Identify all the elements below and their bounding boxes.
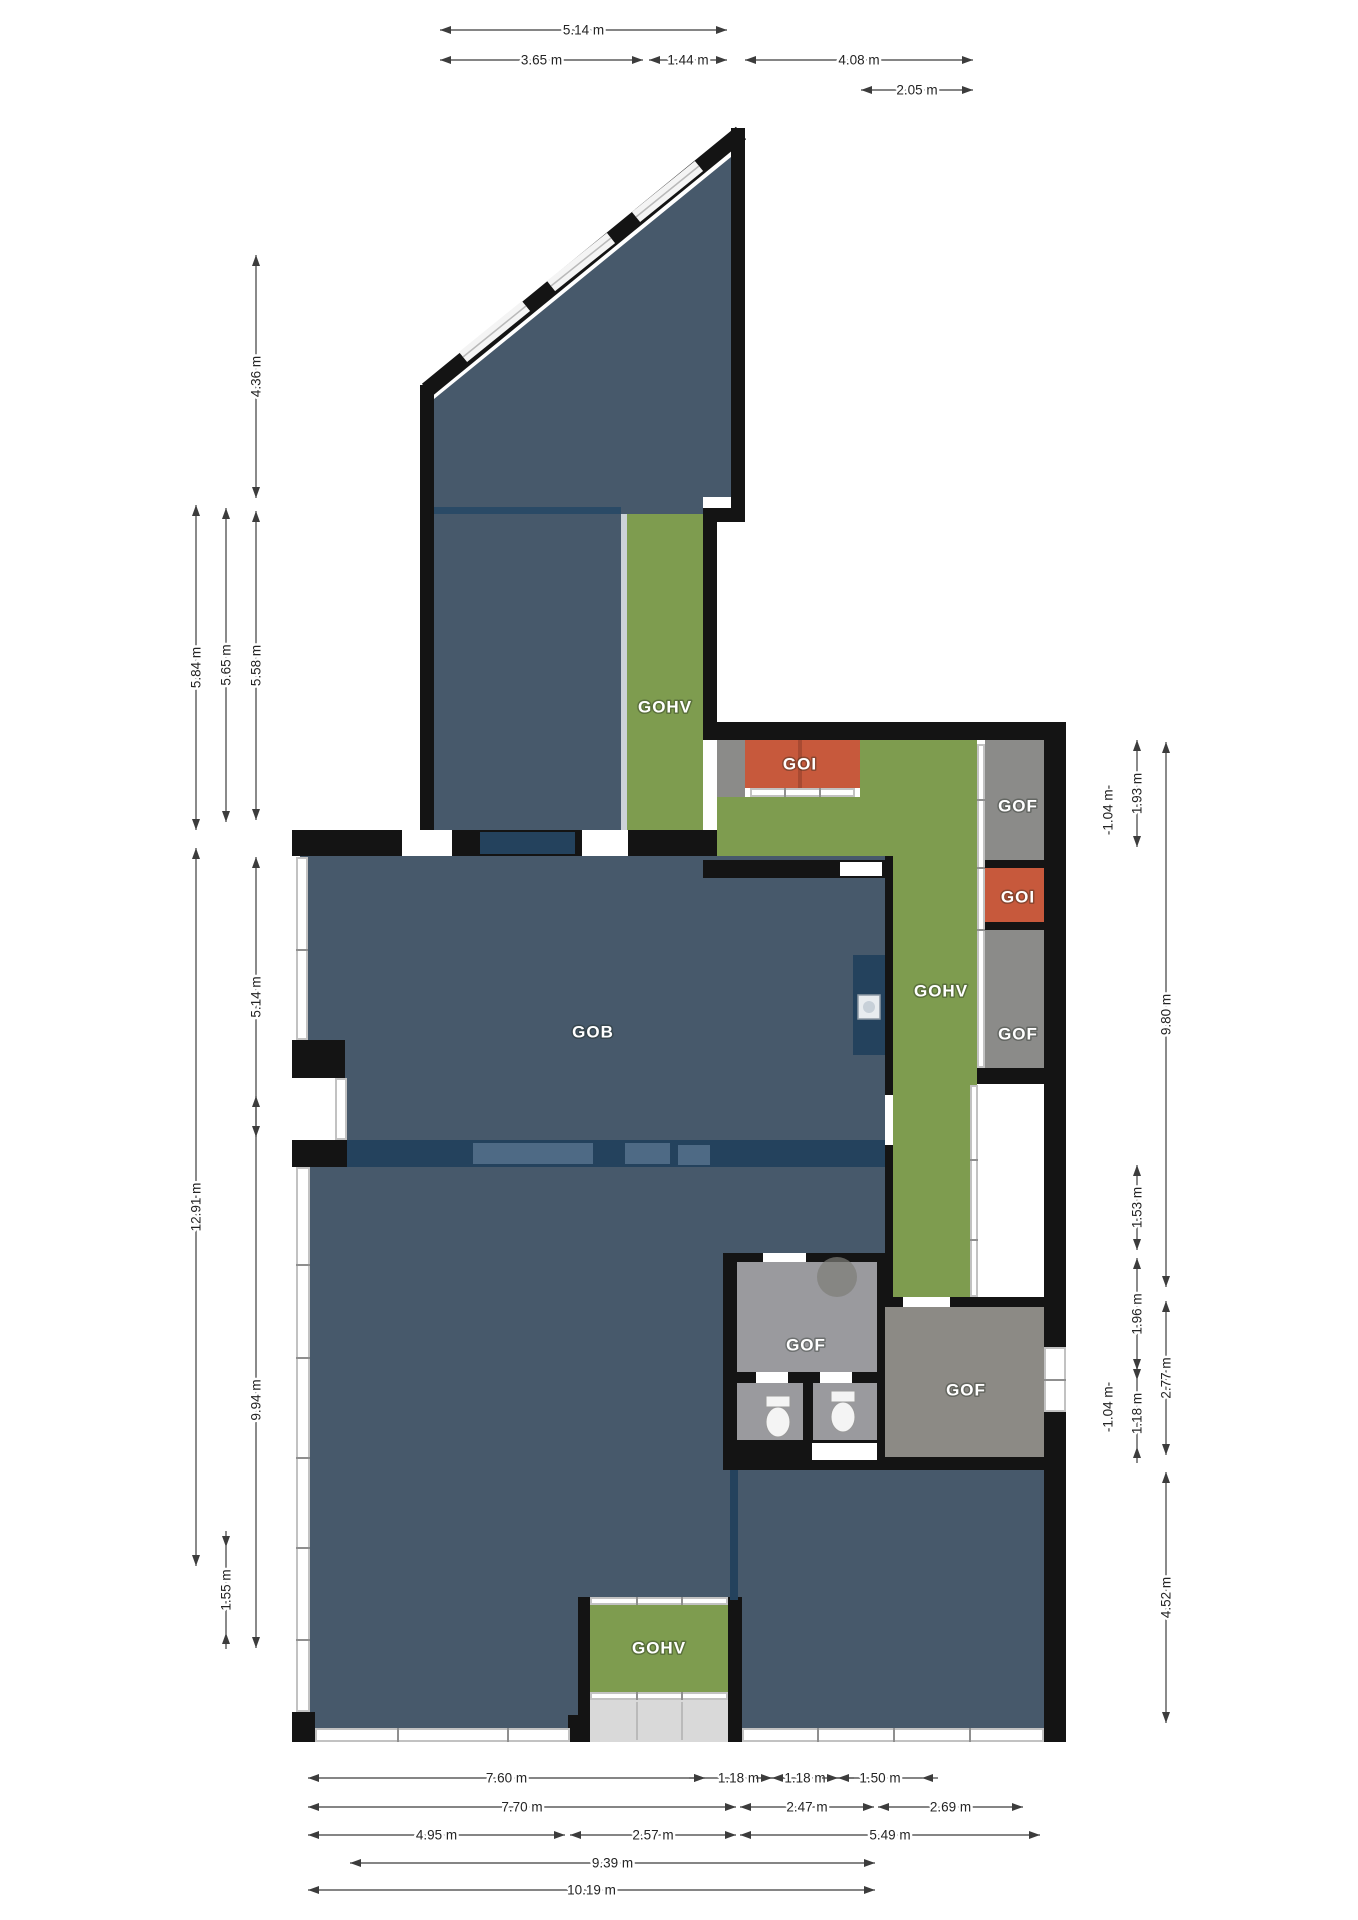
dim-left-9.94-a1 bbox=[252, 1096, 260, 1107]
dim-right-1.53-a2 bbox=[1133, 1239, 1141, 1250]
dim-bot-1.50-a1 bbox=[827, 1774, 838, 1782]
window-goi-1-sill-glass bbox=[752, 790, 853, 795]
dim-bot-10.19-a1 bbox=[308, 1886, 319, 1894]
dim-top-5.14-label: 5.14 m bbox=[563, 23, 604, 38]
gob-band bbox=[300, 1140, 893, 1167]
dim-bot-4.95-label: 4.95 m bbox=[416, 1828, 457, 1843]
bottom-corner-right bbox=[1044, 1712, 1066, 1742]
dim-right-1.93-a1 bbox=[1133, 740, 1141, 751]
dim-top-3.65-label: 3.65 m bbox=[521, 53, 562, 68]
gof-4-bottom-wall bbox=[723, 1457, 1066, 1470]
dim-top-3.65-a2 bbox=[632, 56, 643, 64]
dim-bot-2.57-a1 bbox=[570, 1831, 581, 1839]
dim-right-1.96-a1 bbox=[1133, 1258, 1141, 1269]
dim-bot-2.47-a2 bbox=[863, 1803, 874, 1811]
window-gohv-b-bottom-glass bbox=[592, 1694, 726, 1698]
window-corridor-right-glass bbox=[979, 746, 983, 1066]
dim-top-1.44-a1 bbox=[649, 56, 660, 64]
door-toilet-top bbox=[763, 1253, 806, 1262]
alcove-notch bbox=[292, 1078, 335, 1140]
toilet-left-wall bbox=[723, 1253, 737, 1470]
dim-bot-9.39-a1 bbox=[350, 1859, 361, 1867]
label-goi-2: GOI bbox=[1001, 888, 1035, 907]
gob-band-furniture-3 bbox=[678, 1145, 710, 1165]
dim-bot-2.69-label: 2.69 m bbox=[930, 1800, 971, 1815]
dim-bot-2.57-a2 bbox=[725, 1831, 736, 1839]
floor-plan-canvas: GOHVGOIGOFGOIGOHVGOFGOBGOFGOFGOHV5.14 m3… bbox=[0, 0, 1358, 1920]
room-gob bbox=[300, 856, 893, 1140]
dim-bot-7.60-label: 7.60 m bbox=[486, 1771, 527, 1786]
dim-right-1.18-a1 bbox=[1133, 1369, 1141, 1380]
dim-bot-10.19-label: 10.19 m bbox=[567, 1883, 616, 1898]
label-gohv-wing: GOHV bbox=[638, 698, 692, 717]
navy-partition bbox=[730, 1470, 738, 1600]
dim-bot-4.95-a1 bbox=[308, 1831, 319, 1839]
toilet-1-bowl bbox=[766, 1407, 790, 1437]
dim-top-4.08-a2 bbox=[962, 56, 973, 64]
dim-left-1.55-a2 bbox=[222, 1633, 230, 1644]
dim-bot-4.95-a2 bbox=[554, 1831, 565, 1839]
dim-right-2.77-label: 2.77 m bbox=[1159, 1357, 1174, 1398]
window-void-strip-glass bbox=[972, 1087, 976, 1295]
dim-left-5.65-a1 bbox=[222, 508, 230, 519]
gof-1-bottom-wall bbox=[977, 860, 1044, 868]
dim-bot-9.39-a2 bbox=[864, 1859, 875, 1867]
dim-right-2.77-a1 bbox=[1162, 1301, 1170, 1312]
gof-2-bottom-wall bbox=[977, 1068, 1066, 1084]
dim-bot-7.60-a1 bbox=[308, 1774, 319, 1782]
dim-left-4.36-a1 bbox=[252, 255, 260, 266]
window-gohv-b-top-glass bbox=[592, 1599, 726, 1603]
dim-bot-7.70-label: 7.70 m bbox=[501, 1800, 542, 1815]
door-gap-wing-2 bbox=[582, 830, 628, 856]
door-gap-wing-1 bbox=[402, 830, 452, 856]
label-goi-1: GOI bbox=[783, 755, 817, 774]
door-corridor-gof4 bbox=[903, 1297, 950, 1307]
right-section-top-wall bbox=[703, 722, 1066, 740]
toilet-right-wall bbox=[877, 1253, 885, 1470]
dim-right-2.77-a2 bbox=[1162, 1444, 1170, 1455]
dim-top-3.65-a1 bbox=[440, 56, 451, 64]
dim-right-1.93-label: 1.93 m bbox=[1130, 773, 1145, 814]
window-gob-left-glass bbox=[298, 859, 306, 1038]
dim-left-9.94-a2 bbox=[252, 1637, 260, 1648]
dim-left-5.65-label: 5.65 m bbox=[219, 644, 234, 685]
gob-top-wall-navy bbox=[480, 832, 575, 854]
wing-right-wall-up bbox=[731, 128, 745, 517]
dim-bot-5.49-a2 bbox=[1029, 1831, 1040, 1839]
dim-left-5.58-a1 bbox=[252, 511, 260, 522]
dim-top-1.44-a2 bbox=[716, 56, 727, 64]
door-toilet-stall-1 bbox=[756, 1372, 788, 1383]
dim-left-5.84-label: 5.84 m bbox=[189, 647, 204, 688]
dim-bot-1.18b-a1 bbox=[761, 1774, 772, 1782]
dim-right-1.53-label: 1.53 m bbox=[1130, 1187, 1145, 1228]
dim-bot-2.57-label: 2.57 m bbox=[632, 1828, 673, 1843]
dim-right-1.96-label: 1.96 m bbox=[1130, 1293, 1145, 1334]
entrance-porch bbox=[590, 1700, 728, 1742]
dim-right-1.04a: -1.04 m- bbox=[1101, 785, 1116, 835]
door-toilet-hall bbox=[812, 1443, 877, 1460]
dim-right-1.93-a2 bbox=[1133, 836, 1141, 847]
room-gof-2 bbox=[985, 930, 1044, 1068]
dim-right-4.52-a1 bbox=[1162, 1472, 1170, 1483]
toilet-2-bowl bbox=[831, 1402, 855, 1432]
dim-bot-1.50-a2 bbox=[922, 1774, 933, 1782]
dim-right-9.80-a2 bbox=[1162, 1276, 1170, 1287]
wing-left-wall bbox=[420, 385, 434, 856]
dim-top-4.08-label: 4.08 m bbox=[838, 53, 879, 68]
dim-right-1.04b: -1.04 m- bbox=[1101, 1382, 1116, 1432]
dim-left-5.58-a2 bbox=[252, 809, 260, 820]
gob-band-furniture-2 bbox=[625, 1143, 670, 1164]
dim-left-12.91-a1 bbox=[192, 848, 200, 859]
label-gof-4: GOF bbox=[946, 1381, 986, 1400]
dim-bot-1.18a-a1 bbox=[694, 1774, 705, 1782]
dim-bot-1.18a-label: 1.18 m bbox=[718, 1771, 759, 1786]
door-toilet-stall-2 bbox=[820, 1372, 852, 1383]
dim-top-2.05-a1 bbox=[861, 86, 872, 94]
dim-left-9.94-label: 9.94 m bbox=[249, 1379, 264, 1420]
toilet-divider-v bbox=[803, 1383, 813, 1440]
dim-left-12.91-label: 12.91 m bbox=[189, 1183, 204, 1232]
dim-bot-2.47-a1 bbox=[740, 1803, 751, 1811]
dim-bot-5.49-a1 bbox=[740, 1831, 751, 1839]
label-gohv-bottom: GOHV bbox=[632, 1639, 686, 1658]
label-gof-3: GOF bbox=[786, 1336, 826, 1355]
dim-left-4.36-a2 bbox=[252, 487, 260, 498]
dim-bot-1.50-label: 1.50 m bbox=[859, 1771, 900, 1786]
dim-right-4.52-a2 bbox=[1162, 1712, 1170, 1723]
toilet-2-tank bbox=[831, 1391, 855, 1402]
dim-left-12.91-a2 bbox=[192, 1555, 200, 1566]
kitchen-knob bbox=[863, 1001, 875, 1013]
dim-left-1.55-a1 bbox=[222, 1536, 230, 1547]
dim-bot-9.39-label: 9.39 m bbox=[592, 1856, 633, 1871]
gohv-b-right-wall bbox=[728, 1597, 742, 1742]
gob-band-furniture-1 bbox=[473, 1143, 593, 1164]
dim-left-5.84-a2 bbox=[192, 819, 200, 830]
door-green-strip bbox=[840, 862, 882, 876]
dim-left-5.14-label: 5.14 m bbox=[249, 976, 264, 1017]
label-gohv-mid: GOHV bbox=[914, 982, 968, 1001]
right-outer-wall bbox=[1044, 722, 1066, 1742]
dim-top-1.44-label: 1.44 m bbox=[667, 53, 708, 68]
dim-right-4.52-label: 4.52 m bbox=[1159, 1577, 1174, 1618]
door-gob-corridor bbox=[885, 1095, 893, 1145]
bottom-corner-left bbox=[292, 1712, 315, 1742]
dim-top-4.08-a1 bbox=[745, 56, 756, 64]
niche-gray bbox=[717, 740, 745, 797]
dim-right-1.18-a2 bbox=[1133, 1447, 1141, 1458]
window-alcove-glass bbox=[337, 1080, 345, 1138]
corridor-left-wall bbox=[885, 856, 893, 1302]
dim-left-5.84-a1 bbox=[192, 505, 200, 516]
dim-bot-1.18b-label: 1.18 m bbox=[784, 1771, 825, 1786]
alcove-wall-bottom bbox=[292, 1140, 347, 1167]
dim-top-2.05-a2 bbox=[962, 86, 973, 94]
bottom-post-left bbox=[568, 1715, 590, 1742]
shower bbox=[817, 1257, 857, 1297]
dim-left-5.14-a1 bbox=[252, 857, 260, 868]
wing-corridor-gohv bbox=[627, 514, 703, 846]
label-gof-2: GOF bbox=[998, 1025, 1038, 1044]
corridor-glass-partition bbox=[621, 514, 627, 846]
dim-bot-7.70-a2 bbox=[725, 1803, 736, 1811]
alcove-wall-top bbox=[292, 1040, 345, 1078]
wing-right-wall-mid bbox=[703, 508, 717, 727]
label-gob: GOB bbox=[572, 1023, 614, 1042]
dim-right-9.80-label: 9.80 m bbox=[1159, 994, 1174, 1035]
label-gof-1: GOF bbox=[998, 797, 1038, 816]
goi-2-bottom-wall bbox=[977, 922, 1044, 930]
dim-left-4.36-label: 4.36 m bbox=[249, 356, 264, 397]
dim-bot-2.69-a2 bbox=[1012, 1803, 1023, 1811]
dim-bot-7.70-a1 bbox=[308, 1803, 319, 1811]
dim-bot-5.49-label: 5.49 m bbox=[869, 1828, 910, 1843]
dim-top-5.14-a1 bbox=[440, 26, 451, 34]
dim-bot-2.47-label: 2.47 m bbox=[786, 1800, 827, 1815]
dim-bot-2.69-a1 bbox=[878, 1803, 889, 1811]
dim-right-9.80-a1 bbox=[1162, 742, 1170, 753]
toilet-1-tank bbox=[766, 1396, 790, 1407]
dim-left-1.55-label: 1.55 m bbox=[219, 1569, 234, 1610]
window-bottom-left-glass bbox=[317, 1730, 568, 1740]
dim-left-5.58-label: 5.58 m bbox=[249, 645, 264, 686]
dim-right-1.53-a1 bbox=[1133, 1165, 1141, 1176]
dim-top-5.14-a2 bbox=[716, 26, 727, 34]
window-left-lower-glass bbox=[298, 1169, 308, 1710]
dim-top-2.05-label: 2.05 m bbox=[896, 83, 937, 98]
dim-right-1.18-label: 1.18 m bbox=[1130, 1393, 1145, 1434]
wing-divider-line bbox=[434, 507, 621, 514]
floor-plan-page: GOHVGOIGOFGOIGOHVGOFGOBGOFGOFGOHV5.14 m3… bbox=[0, 0, 1358, 1920]
dim-bot-10.19-a2 bbox=[864, 1886, 875, 1894]
dim-left-5.65-a2 bbox=[222, 811, 230, 822]
